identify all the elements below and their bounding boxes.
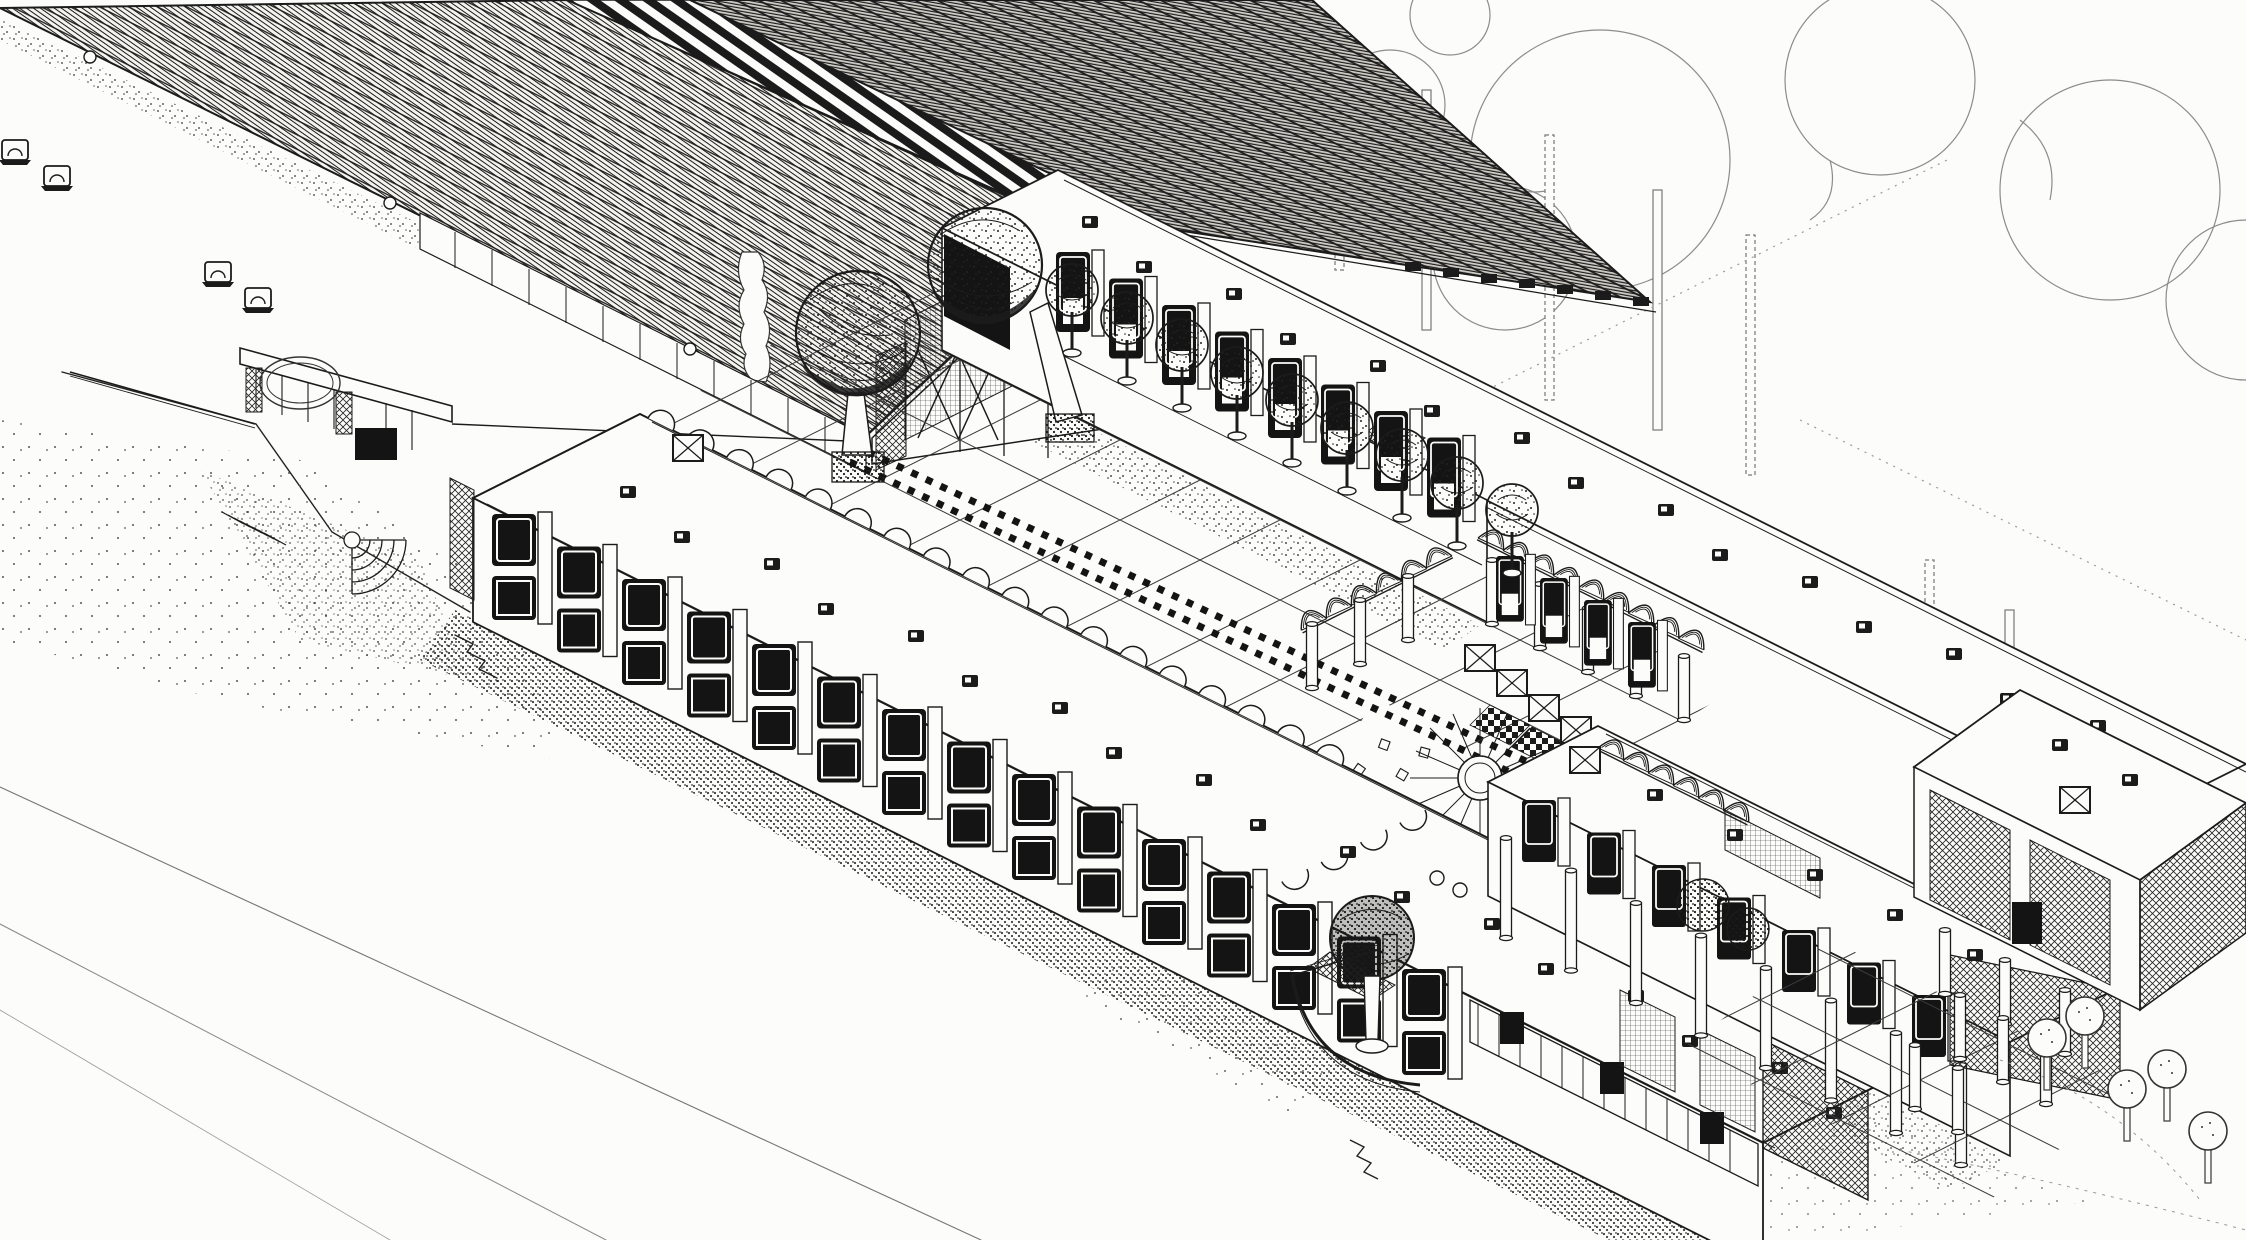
axonometric-drawing (0, 0, 2246, 1240)
round-bush (1677, 879, 1729, 931)
drawing-sheet (0, 0, 2246, 1240)
ball-post (1453, 883, 1467, 897)
west-end-brick (450, 478, 474, 600)
round-bush (1727, 908, 1769, 950)
annex-brick-pier (246, 368, 262, 412)
ball-post (1430, 871, 1444, 885)
tree-trunk (1364, 976, 1380, 1040)
tree-planter (1356, 1039, 1388, 1053)
block-opening (2012, 902, 2042, 944)
annex-door (355, 428, 397, 460)
